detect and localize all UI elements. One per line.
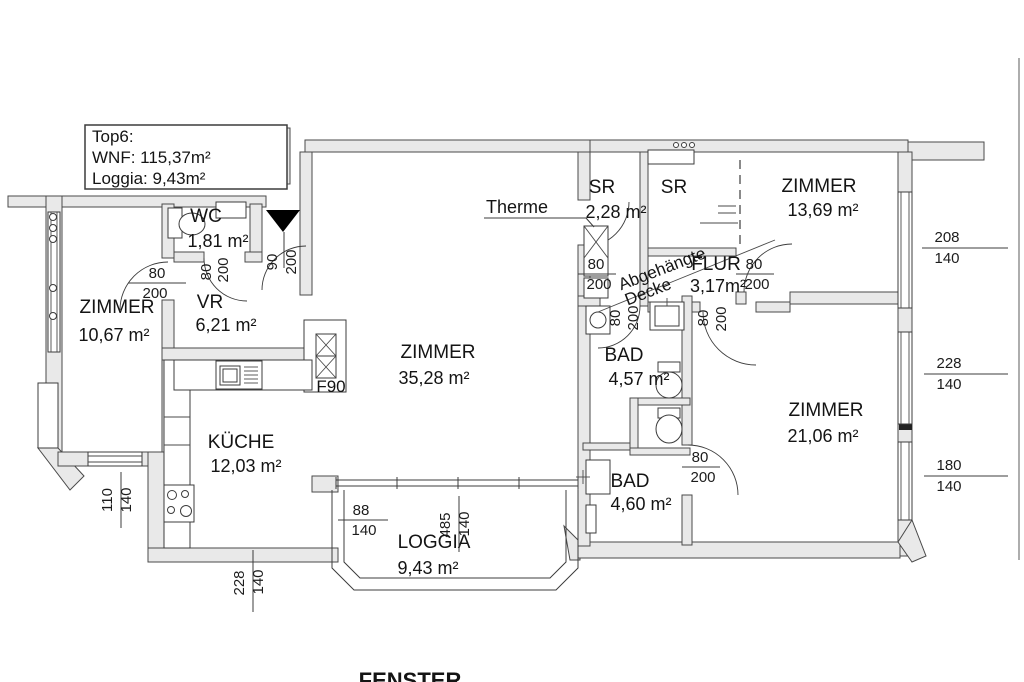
dim-window-right-top: 208 140 — [922, 229, 1008, 267]
room-label-zimmer-top-right: ZIMMER — [782, 176, 857, 197]
room-label-zimmer-main: ZIMMER — [401, 342, 476, 363]
floor-plan: Top6: WNF: 115,37m² Loggia: 9,43m² ZIMME… — [0, 0, 1024, 682]
room-label-wc: WC — [190, 206, 222, 227]
svg-text:140: 140 — [250, 569, 267, 594]
svg-text:140: 140 — [936, 376, 961, 393]
room-label-bad-upper: BAD — [604, 345, 643, 366]
annotations: Therme Abgehängte Decke F90 FENSTER — [316, 197, 708, 682]
svg-text:80: 80 — [746, 256, 763, 273]
room-area-loggia: 9,43 m² — [397, 558, 458, 578]
svg-text:90: 90 — [264, 254, 281, 271]
svg-text:140: 140 — [351, 522, 376, 539]
svg-text:200: 200 — [142, 285, 167, 302]
svg-text:180: 180 — [936, 457, 961, 474]
room-area-zimmer-main: 35,28 m² — [398, 368, 469, 388]
entrance-marker-icon — [266, 210, 300, 232]
room-area-wc: 1,81 m² — [187, 231, 248, 251]
room-area-kueche: 12,03 m² — [210, 456, 281, 476]
svg-text:80: 80 — [692, 449, 709, 466]
room-area-flur: 3,17m² — [690, 276, 746, 296]
svg-text:200: 200 — [586, 276, 611, 293]
kitchen-sink-icon — [216, 361, 262, 389]
room-area-zimmer-top-right: 13,69 m² — [787, 200, 858, 220]
room-area-sr-small: 2,28 m² — [585, 202, 646, 222]
wardrobe-partition — [700, 160, 740, 245]
svg-text:140: 140 — [934, 250, 959, 267]
svg-text:200: 200 — [283, 249, 300, 274]
room-area-zimmer-left: 10,67 m² — [78, 325, 149, 345]
room-label-sr-large: SR — [661, 177, 687, 198]
svg-text:200: 200 — [690, 469, 715, 486]
svg-text:140: 140 — [936, 478, 961, 495]
bad-upper-tub-icon — [650, 298, 684, 330]
svg-text:140: 140 — [456, 511, 473, 536]
room-area-vr: 6,21 m² — [195, 315, 256, 335]
room-label-vr: VR — [197, 292, 223, 313]
title-box-line1: Top6: — [92, 127, 134, 146]
footer-label: FENSTER — [359, 668, 462, 682]
svg-text:140: 140 — [118, 487, 135, 512]
room-label-kueche: KÜCHE — [208, 432, 275, 453]
cooktop-icon — [164, 485, 194, 522]
dim-bad-upper-door: 80 200 — [607, 305, 642, 330]
svg-text:80: 80 — [149, 265, 166, 282]
svg-text:88: 88 — [353, 502, 370, 519]
dim-window-right-bottom: 180 140 — [924, 457, 1008, 495]
svg-text:200: 200 — [744, 276, 769, 293]
dim-window-left: 110 140 — [99, 472, 135, 528]
room-label-zimmer-right: ZIMMER — [789, 400, 864, 421]
room-label-bad-lower: BAD — [610, 471, 649, 492]
dim-window-loggia-west: 88 140 — [338, 502, 388, 539]
room-label-sr-small: SR — [589, 177, 615, 198]
room-area-bad-upper: 4,57 m² — [608, 369, 669, 389]
therme-label: Therme — [486, 197, 548, 217]
svg-text:208: 208 — [934, 229, 959, 246]
title-box: Top6: WNF: 115,37m² Loggia: 9,43m² — [85, 125, 287, 189]
title-box-line2: WNF: 115,37m² — [92, 148, 211, 167]
svg-text:485: 485 — [437, 512, 454, 537]
svg-text:80: 80 — [607, 310, 624, 327]
room-area-zimmer-right: 21,06 m² — [787, 426, 858, 446]
svg-text:80: 80 — [695, 310, 712, 327]
svg-text:200: 200 — [215, 257, 232, 282]
svg-text:80: 80 — [588, 256, 605, 273]
toilet-lower-icon — [656, 408, 682, 443]
svg-text:228: 228 — [936, 355, 961, 372]
svg-text:228: 228 — [231, 570, 248, 595]
f90-label: F90 — [316, 377, 345, 396]
svg-text:110: 110 — [99, 488, 116, 512]
title-box-line3: Loggia: 9,43m² — [92, 169, 206, 188]
svg-text:200: 200 — [625, 305, 642, 330]
dim-window-right-middle: 228 140 — [924, 355, 1008, 393]
room-area-bad-lower: 4,60 m² — [610, 494, 671, 514]
dim-zimmer-right-door: 80 200 — [695, 306, 730, 331]
svg-text:200: 200 — [713, 306, 730, 331]
svg-text:80: 80 — [198, 264, 215, 281]
